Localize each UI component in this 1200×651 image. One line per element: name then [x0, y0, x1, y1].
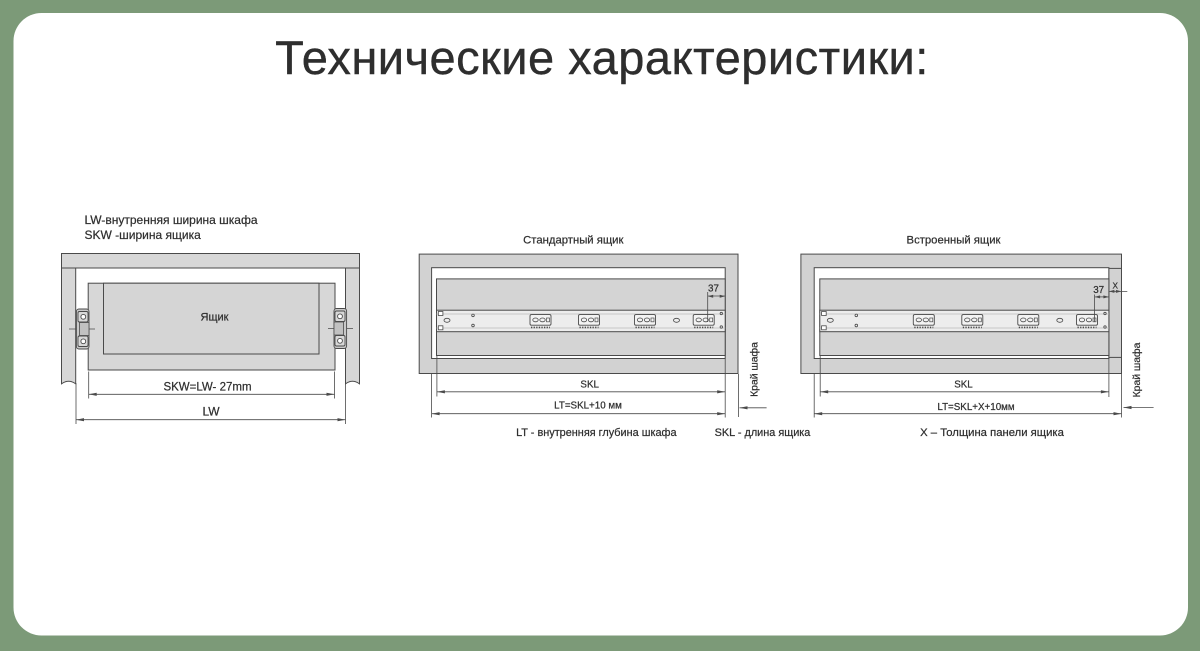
svg-text:37: 37 [708, 284, 719, 295]
svg-text:Край шафа: Край шафа [749, 342, 761, 397]
svg-text:SKW -ширина ящика: SKW -ширина ящика [85, 228, 202, 242]
svg-text:SKL: SKL [580, 380, 599, 391]
svg-text:LW-внутренняя ширина шкафа: LW-внутренняя ширина шкафа [85, 213, 258, 227]
svg-text:Ящик: Ящик [201, 312, 229, 324]
svg-text:Встроенный ящик: Встроенный ящик [907, 234, 1001, 246]
svg-text:Технические характеристики:: Технические характеристики: [275, 31, 929, 84]
svg-text:LT - внутренняя глубина шкафа: LT - внутренняя глубина шкафа [516, 427, 677, 439]
svg-text:Край шафа: Край шафа [1131, 342, 1143, 397]
svg-text:SKL - длина ящика: SKL - длина ящика [715, 427, 812, 439]
svg-text:X – Толщина панели ящика: X – Толщина панели ящика [920, 427, 1065, 439]
svg-text:LT=SKL+10 мм: LT=SKL+10 мм [554, 401, 622, 412]
svg-text:37: 37 [1093, 285, 1104, 296]
svg-text:Стандартный ящик: Стандартный ящик [523, 234, 623, 246]
svg-text:X: X [1112, 281, 1118, 290]
svg-text:LW: LW [202, 405, 220, 419]
svg-text:SKL: SKL [954, 380, 973, 391]
svg-text:LT=SKL+X+10мм: LT=SKL+X+10мм [937, 402, 1015, 413]
svg-text:SKW=LW- 27mm: SKW=LW- 27mm [163, 381, 251, 393]
